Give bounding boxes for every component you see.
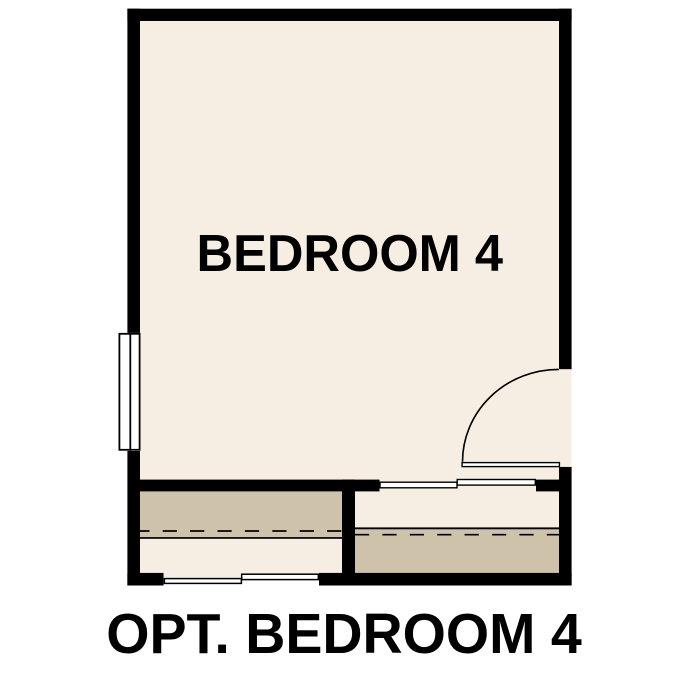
svg-text:BEDROOM 4: BEDROOM 4 (197, 225, 504, 283)
svg-text:OPT. BEDROOM 4: OPT. BEDROOM 4 (106, 602, 582, 666)
